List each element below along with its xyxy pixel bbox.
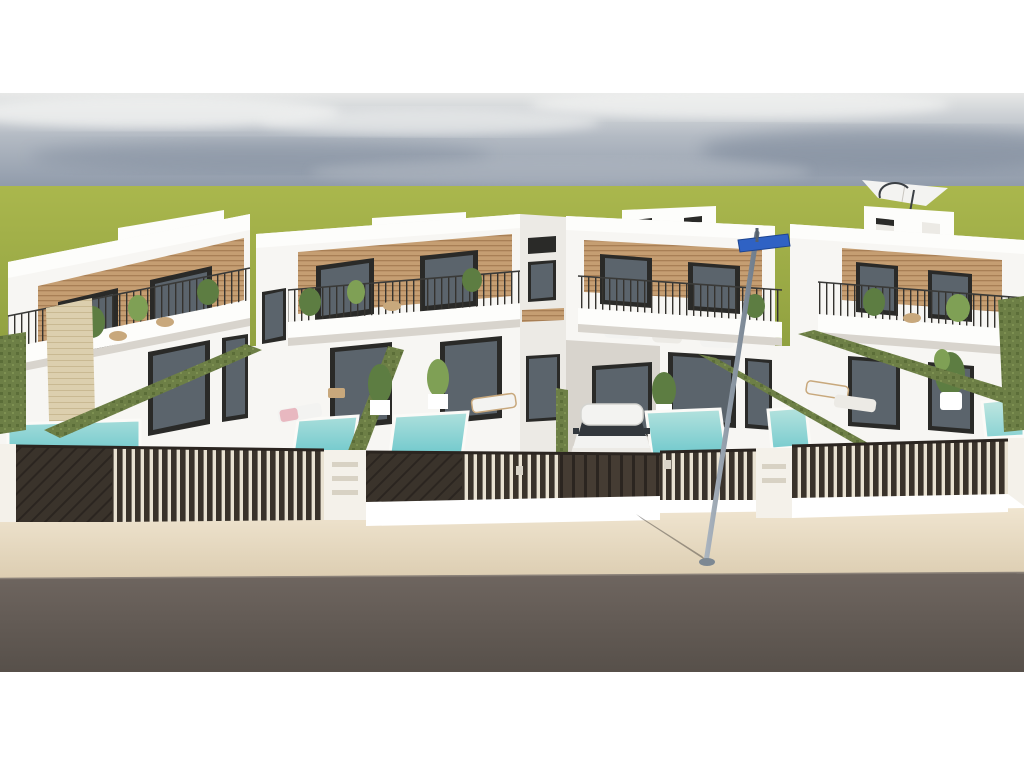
cloud: [260, 109, 600, 135]
balcony-plant: [128, 295, 148, 321]
balcony-plant: [462, 268, 482, 292]
corner-pillar: [0, 444, 16, 522]
balcony-plant: [347, 280, 365, 304]
tower-glass: [531, 263, 553, 299]
balcony-chair: [109, 331, 127, 341]
hedge-wall: [556, 388, 568, 458]
car-roof: [581, 404, 643, 425]
driveway-gate: [558, 454, 660, 498]
fence-slats: [462, 452, 558, 500]
letterbox-pillar: [324, 450, 366, 520]
letterbox-top: [0, 0, 1024, 93]
hedge-wall-left-edge: [0, 332, 26, 434]
letterbox-slot: [332, 490, 358, 495]
scene-canvas: [0, 0, 1024, 768]
plant-pot: [940, 392, 962, 410]
planter: [370, 400, 390, 415]
fence-slats: [112, 446, 324, 522]
car-mirror: [573, 428, 579, 434]
fence-cap: [366, 452, 660, 454]
balcony-plant: [197, 279, 219, 305]
slat-canopy: [522, 308, 564, 322]
keypad: [664, 460, 671, 469]
render-photo: [0, 0, 1024, 768]
letterbox-bottom: [0, 672, 1024, 768]
cloud: [530, 89, 950, 119]
cloud: [310, 158, 810, 186]
road: [0, 572, 1024, 672]
gate-solid: [16, 446, 112, 522]
car-mirror: [644, 428, 650, 434]
balcony-chair: [156, 317, 174, 327]
corner-pillar: [1008, 438, 1024, 506]
fence-slats: [660, 450, 756, 500]
tower-window: [528, 236, 556, 254]
yard-plant: [652, 372, 676, 408]
balcony-plant: [299, 288, 321, 316]
car-hood: [573, 434, 650, 448]
side-window: [262, 288, 286, 344]
pool-4: [646, 409, 726, 455]
balcony-chair: [383, 301, 401, 311]
letterbox-slot: [762, 478, 786, 483]
yard-plant: [368, 364, 392, 404]
letterbox-slot: [332, 476, 358, 481]
letterbox-slot: [332, 462, 358, 467]
fence-slats: [792, 440, 1008, 498]
keypad: [516, 466, 523, 475]
tower-door-glass: [529, 357, 557, 419]
planter: [428, 394, 448, 409]
gate-decorative: [366, 452, 462, 502]
letterbox-slot: [762, 464, 786, 469]
balcony-plant: [946, 294, 970, 322]
yard-plant: [427, 359, 449, 397]
balcony-chair: [903, 313, 921, 323]
fence-cap: [660, 450, 756, 452]
ground-window: [848, 356, 900, 430]
side-table: [328, 388, 345, 398]
balcony-plant: [863, 288, 885, 316]
lamp-pole-base: [699, 558, 715, 566]
